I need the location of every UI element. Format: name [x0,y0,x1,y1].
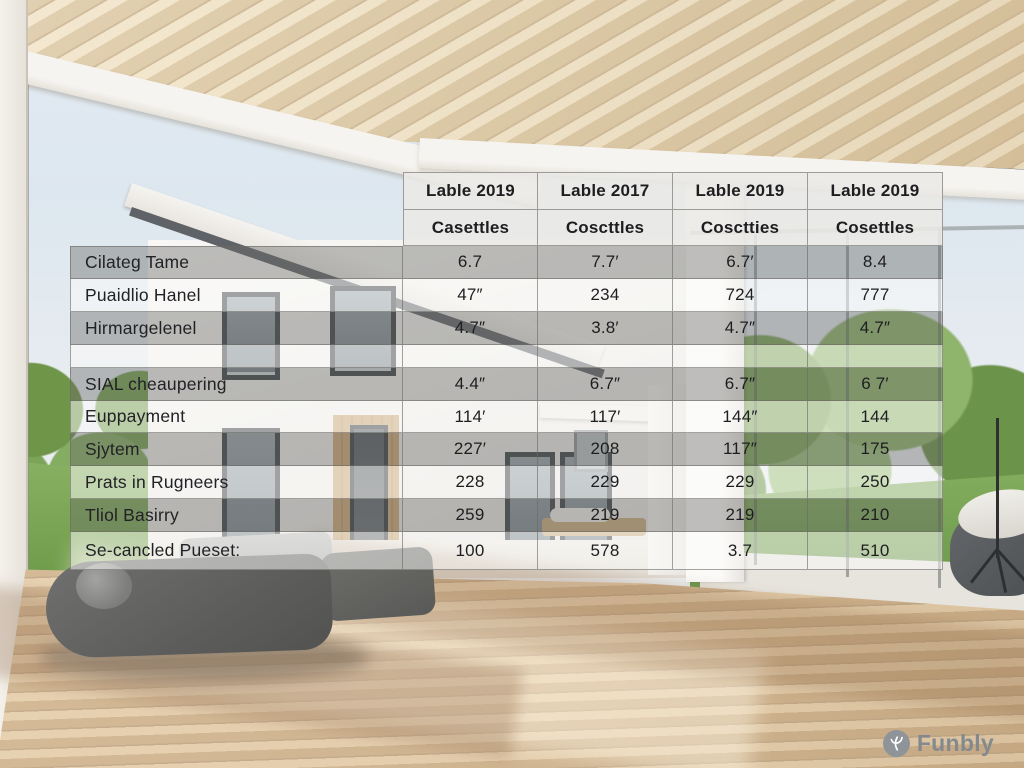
cell-value: 144″ [673,401,808,433]
column-header-sub: Cosettles [808,210,943,246]
scene-canvas: Lable 2019Lable 2017Lable 2019Lable 2019… [0,0,1024,768]
cell-value: 578 [538,532,673,570]
row-label: Prats in Rugneers [70,466,403,499]
column-header-year: Lable 2019 [673,172,808,210]
tripod-lamp-pole [996,418,999,558]
cell-value: 234 [538,279,673,312]
cell-value: 3.7 [673,532,808,570]
logo-figure-icon [887,734,906,753]
cell-value: 6 7′ [808,368,943,401]
cell-value: 6.7″ [538,368,673,401]
column-header-sub: Cosctties [673,210,808,246]
cell-value [403,345,538,368]
cell-value: 229 [538,466,673,499]
column-header-year: Lable 2019 [403,172,538,210]
cell-value: 4.7″ [673,312,808,345]
row-label: Cilateg Tame [70,246,403,279]
cell-value: 510 [808,532,943,570]
cell-value: 4.7″ [403,312,538,345]
cell-value: 6.7 [403,246,538,279]
cell-value: 7.7′ [538,246,673,279]
cell-value: 4.4″ [403,368,538,401]
cell-value: 47″ [403,279,538,312]
cell-value: 229 [673,466,808,499]
cell-value: 144 [808,401,943,433]
cell-value: 6.7″ [673,368,808,401]
cell-value [673,345,808,368]
cell-value: 208 [538,433,673,466]
row-label: Tliol Basirry [70,499,403,532]
header-spacer [70,172,403,210]
watermark-logo: Funbly [883,730,994,757]
cell-value: 117′ [538,401,673,433]
cell-value: 3.8′ [538,312,673,345]
cell-value: 114′ [403,401,538,433]
column-header-sub: Coscttles [538,210,673,246]
cell-value: 259 [403,499,538,532]
cell-value [538,345,673,368]
row-label: SIAL cheaupering [70,368,403,401]
cell-value: 227′ [403,433,538,466]
data-table: Lable 2019Lable 2017Lable 2019Lable 2019… [70,172,943,570]
row-label [70,345,403,368]
header-spacer [70,210,403,246]
cell-value: 777 [808,279,943,312]
row-label: Hirmargelenel [70,312,403,345]
logo-icon [883,730,910,757]
cell-value [808,345,943,368]
logo-text: Funbly [917,730,994,757]
cell-value: 6.7′ [673,246,808,279]
cell-value: 724 [673,279,808,312]
cell-value: 8.4 [808,246,943,279]
cell-value: 219 [673,499,808,532]
column-header-year: Lable 2017 [538,172,673,210]
cell-value: 250 [808,466,943,499]
cell-value: 100 [403,532,538,570]
cell-value: 228 [403,466,538,499]
cell-value: 219 [538,499,673,532]
row-label: Se-cancled Pueset: [70,532,403,570]
row-label: Puaidlio Hanel [70,279,403,312]
cell-value: 210 [808,499,943,532]
cell-value: 117″ [673,433,808,466]
column-header-year: Lable 2019 [808,172,943,210]
cell-value: 175 [808,433,943,466]
column-header-sub: Casettles [403,210,538,246]
row-label: Sjytem [70,433,403,466]
row-label: Euppayment [70,401,403,433]
cell-value: 4.7″ [808,312,943,345]
